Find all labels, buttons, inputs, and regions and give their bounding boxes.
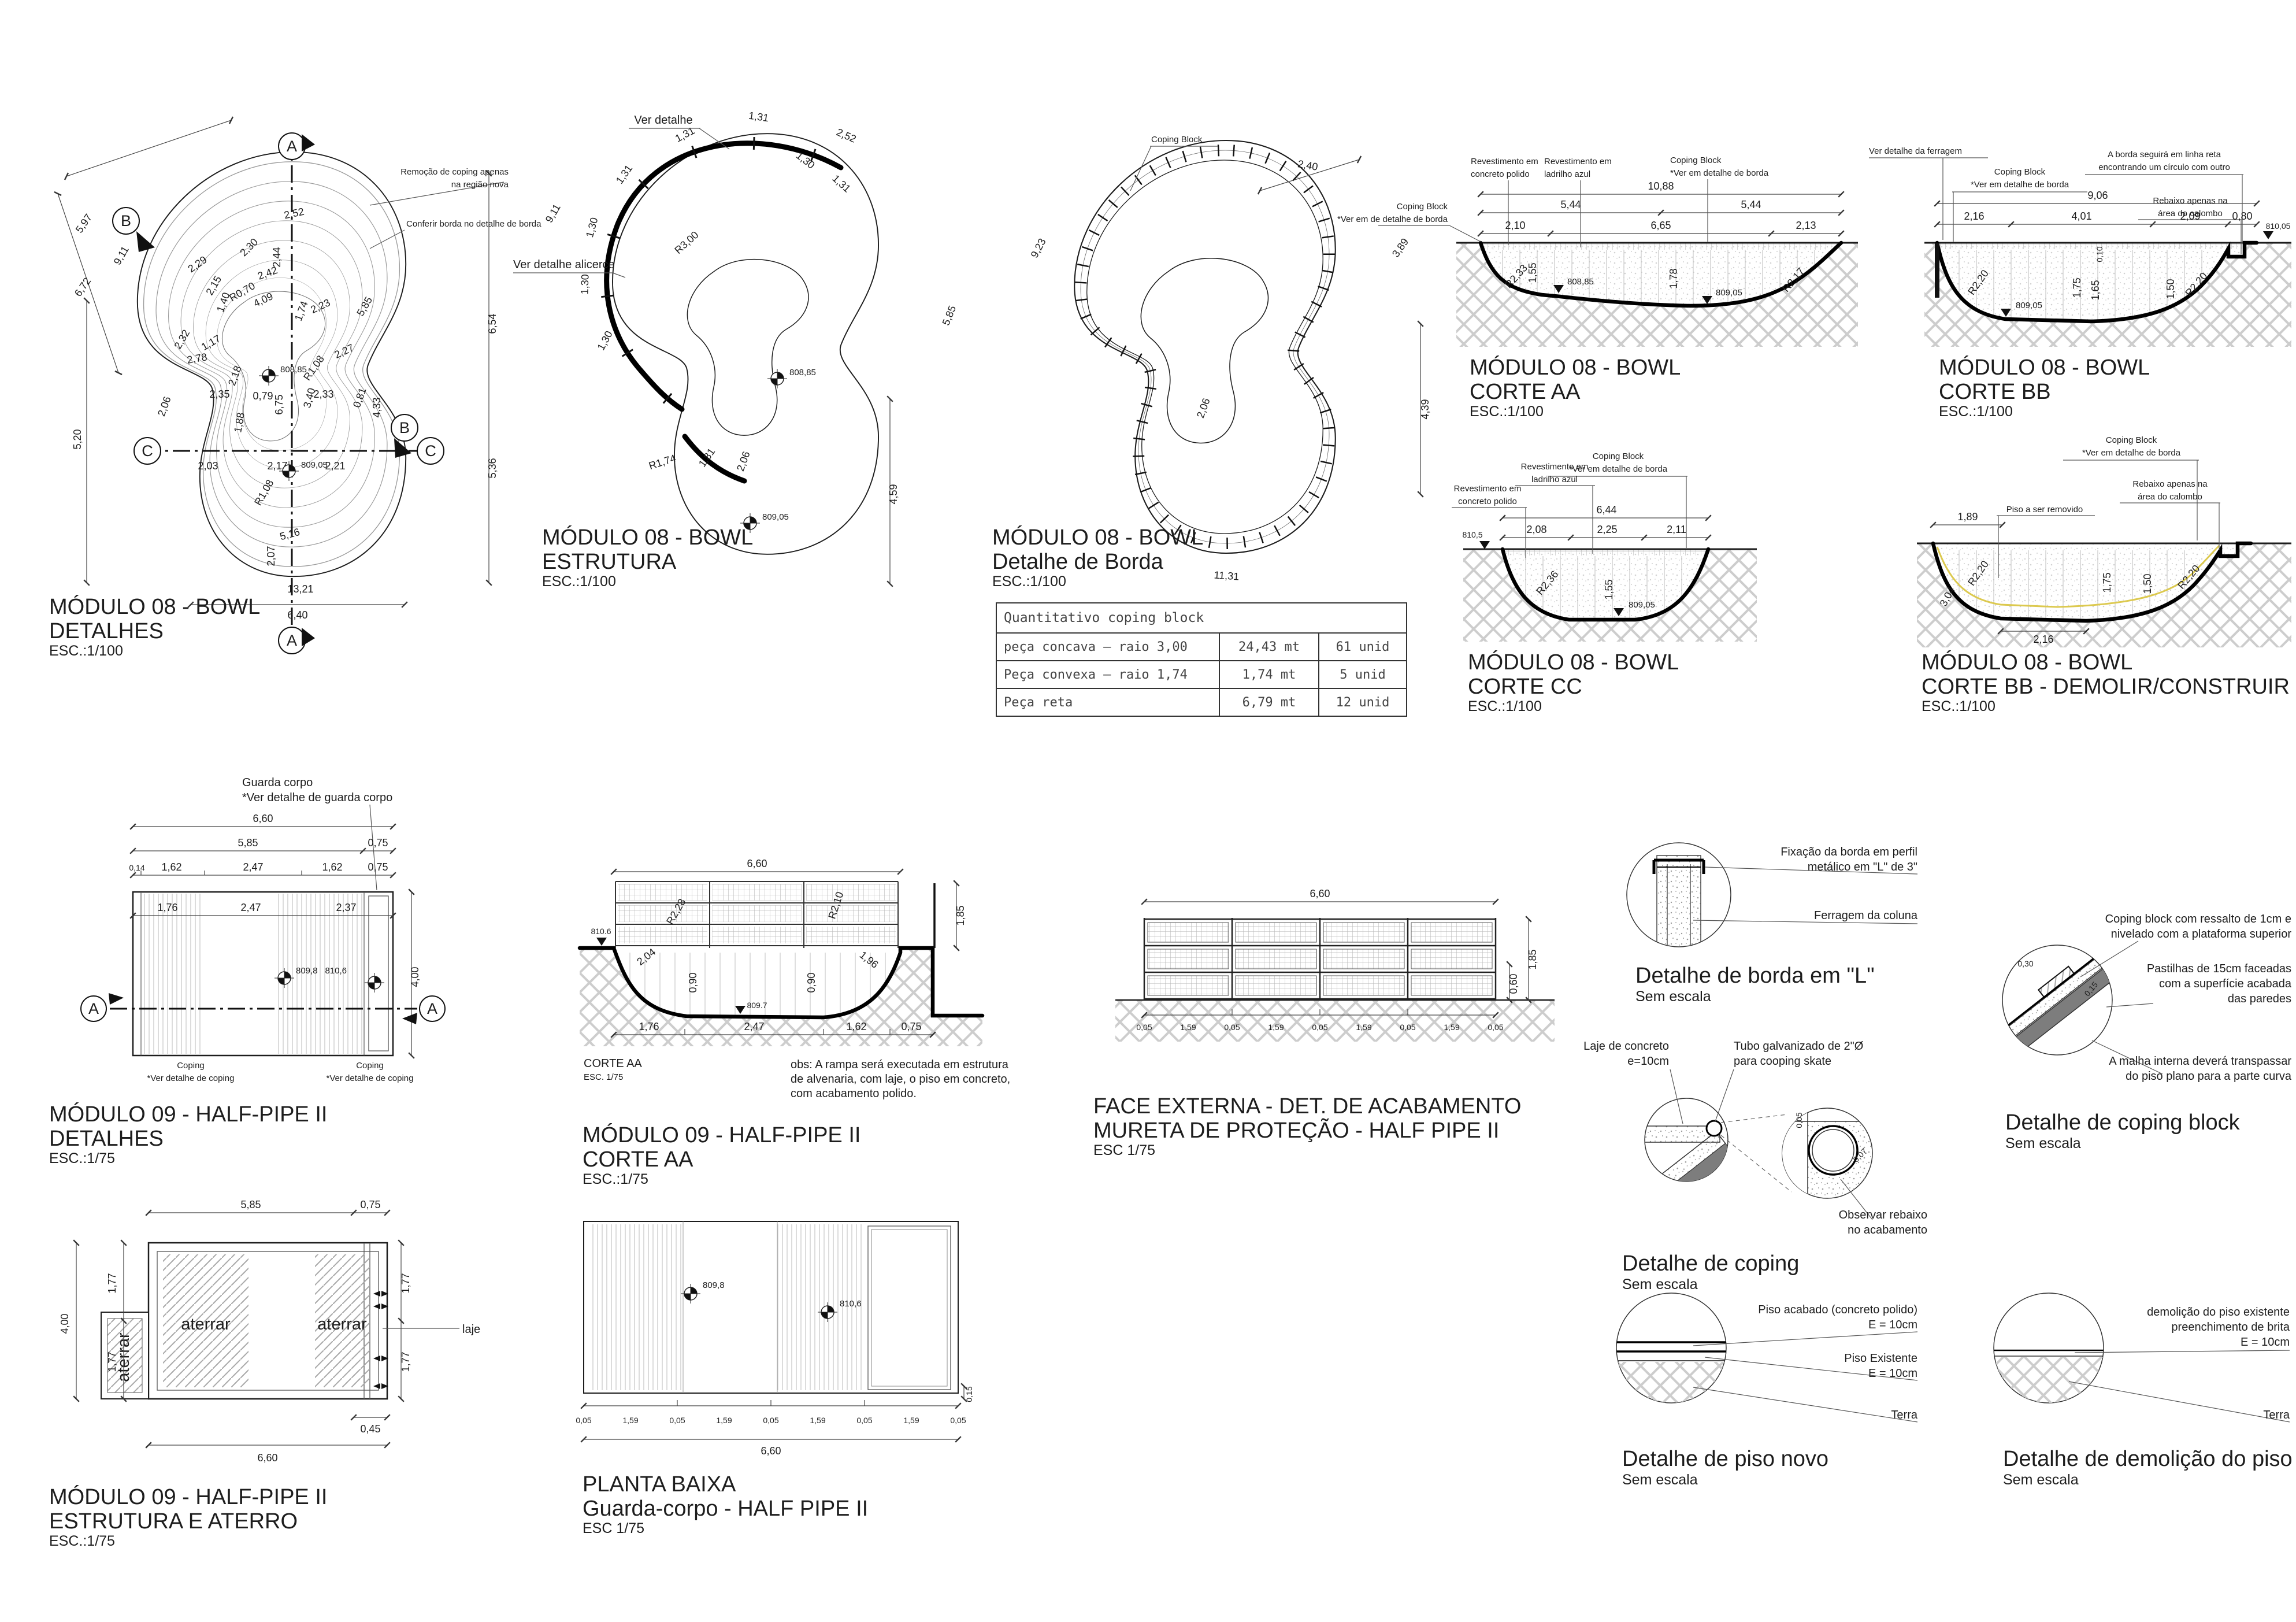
label: Piso a ser removido (2006, 505, 2083, 514)
label: A borda seguirá em linha reta (2108, 150, 2221, 160)
table-title: Quantitativo coping block (997, 610, 1406, 625)
dim: 6,75 (273, 394, 285, 414)
label: das paredes (2228, 993, 2291, 1005)
callout: Ver detalhe (634, 114, 692, 127)
table-cell-length: 6,79 mt (1219, 689, 1318, 716)
callouts: Ver detalhe Ver detalhe alicerce (513, 114, 729, 277)
guardrail-plan (369, 896, 388, 1051)
panel-subtitle: DETALHES (49, 619, 164, 643)
dim: 5,85 (238, 837, 258, 849)
dim: 1,59 (810, 1416, 825, 1425)
dim: 11,31 (1214, 569, 1240, 583)
level-symbol (259, 366, 279, 386)
note: Conferir borda no detalhe de borda (406, 219, 541, 229)
dim: 5,85 (940, 304, 959, 327)
panel-title: MÓDULO 08 - BOWL (1922, 650, 2132, 675)
label: Piso acabado (concreto polido) (1758, 1303, 1917, 1316)
dim: 2,29 (186, 254, 209, 275)
label: do piso plano para a parte curva (2126, 1070, 2292, 1083)
dim: 0,05 (950, 1416, 966, 1425)
dim: 4,09 (251, 290, 275, 309)
floor-layers (1616, 1342, 1726, 1405)
panel-subtitle: CORTE CC (1468, 675, 1582, 699)
dim: 5,97 (73, 212, 94, 235)
panel-planta-baixa: 809,8 810,6 0,05 1,59 0,05 1,59 0,05 1,5… (576, 1221, 974, 1536)
section-sublabel: CORTE AA (584, 1057, 642, 1070)
table-row: Peça convexa – raio 1,74 1,74 mt 5 unid (997, 660, 1406, 688)
dim: 2,32 (172, 328, 192, 351)
panel-scale: ESC.:1/100 (1470, 403, 1544, 420)
dimension-text: 1,31 1,31 1,31 1,30 1,30 1,30 2,52 1,30 … (543, 110, 959, 505)
label: Coping (177, 1061, 205, 1071)
label: e=10cm (1627, 1055, 1669, 1068)
dim: 2,44 (271, 247, 283, 267)
dim: 1,75 (2101, 572, 2113, 592)
label: Coping Block (1994, 167, 2046, 177)
dim: 1,31 (748, 110, 769, 124)
section-marker-a: A (88, 1000, 99, 1017)
dim: 2,16 (1964, 210, 1984, 222)
column-detail (1654, 856, 1704, 954)
label: *Ver em detalhe de borda (1971, 180, 2069, 190)
level-text: 810,05 (2266, 221, 2291, 231)
dim: 1,55 (1603, 579, 1615, 599)
dim: 1,74 (292, 299, 310, 323)
section-marker-b: B (121, 212, 131, 229)
dim: 13,21 (287, 583, 313, 595)
dim: 5,85 (354, 295, 374, 318)
panel-subtitle: CORTE BB (1939, 380, 2051, 404)
dim: 10,88 (1648, 180, 1674, 192)
dimension-lines (1869, 158, 2257, 254)
label: área do calombo (2138, 492, 2202, 502)
dim: 5,16 (279, 526, 301, 542)
dim: 1,77 (106, 1273, 118, 1293)
label: preenchimento de brita (2171, 1321, 2290, 1334)
dim: 1,59 (622, 1416, 638, 1425)
dim: 6,60 (253, 813, 273, 824)
dim: 6,44 (1596, 504, 1616, 516)
panel-face-externa: 6,60 1,85 0,60 0,05 1,59 0,05 1,59 0,05 … (1093, 888, 1555, 1158)
level-text: 810.6 (591, 927, 611, 936)
dim: 2,47 (240, 902, 261, 913)
panel-scale: ESC.:1/100 (1922, 698, 1995, 714)
table-cell-desc: Peça convexa – raio 1,74 (997, 668, 1219, 682)
dimension-lines (584, 1386, 964, 1439)
obs-note: de alvenaria, com laje, o piso em concre… (791, 1073, 1010, 1086)
dim: 2,52 (834, 126, 858, 145)
dim: 2,25 (1597, 524, 1617, 535)
dim: 2,07 (265, 546, 277, 566)
level-text: 810,5 (1462, 530, 1482, 539)
callout: Ver detalhe alicerce (513, 258, 615, 271)
label: Pastilhas de 15cm faceadas (2147, 962, 2291, 975)
dim: 2,06 (1195, 397, 1212, 420)
callout: Coping Block (1151, 135, 1203, 145)
panel-subtitle: CORTE BB - DEMOLIR/CONSTRUIR (1922, 675, 2290, 699)
dim: 1,65 (2090, 280, 2101, 300)
panel-scale: ESC.:1/100 (1468, 698, 1542, 714)
label: Observar rebaixo (1839, 1209, 1927, 1221)
dim: 2,13 (1796, 220, 1816, 231)
dim: 0,90 (806, 972, 817, 993)
panel-title: MÓDULO 08 - BOWL (49, 594, 260, 619)
dim: 1,59 (1444, 1023, 1459, 1032)
dim: R1,74 (647, 452, 677, 472)
table-cell-qty: 61 unid (1318, 634, 1406, 660)
level-text: 809,05 (1629, 600, 1655, 610)
quantity-table: Quantitativo coping block peça concava –… (996, 602, 1407, 717)
dim: 1,59 (1356, 1023, 1371, 1032)
panel-title: MÓDULO 08 - BOWL (1939, 355, 2150, 380)
dim: 1,77 (400, 1351, 411, 1372)
panel-scale: ESC.:1/100 (542, 573, 616, 590)
panel-title: MÓDULO 09 - HALF-PIPE II (49, 1102, 327, 1127)
label: Tubo galvanizado de 2"Ø (1734, 1040, 1863, 1053)
level-text: 808,85 (280, 365, 307, 375)
dim: 1,76 (157, 902, 177, 913)
table-cell-length: 1,74 mt (1219, 661, 1318, 688)
dim: 2,37 (336, 902, 356, 913)
elevation-marker (1479, 541, 1490, 549)
panel-m08-corte-aa: Coping Block *Ver em de detalhe de borda… (1337, 155, 1858, 420)
dim: 9,23 (1029, 236, 1048, 260)
detail-scale: Sem escala (2005, 1135, 2081, 1151)
dim: 0,05 (1488, 1023, 1503, 1032)
dim: 1,78 (1668, 268, 1679, 288)
dim: 1,76 (639, 1021, 659, 1032)
aterrar-label: aterrar (181, 1315, 231, 1334)
dim: 1,59 (1268, 1023, 1284, 1032)
section-marker-b: B (399, 419, 410, 436)
dim: 3,89 (1390, 236, 1411, 259)
dim: 2,30 (238, 236, 260, 258)
dim: 1,77 (106, 1351, 118, 1372)
dim: 9,06 (2087, 190, 2108, 201)
detail-title: Detalhe de borda em "L" (1635, 964, 1875, 988)
panel-subtitle: CORTE AA (1470, 380, 1581, 404)
label: concreto polido (1471, 169, 1530, 179)
detail-scale: Sem escala (2003, 1472, 2079, 1488)
panel-detalhe-coping: 0,05 0,07 Laje de concreto e=10cm Tubo g… (1583, 1040, 1927, 1293)
dim: 1,30 (584, 216, 600, 239)
dim: 1,59 (1180, 1023, 1196, 1032)
label: encontrando um círculo com outro (2098, 162, 2230, 172)
bowl-contours (138, 152, 406, 576)
panel-m08-corte-bb: Ver detalhe da ferragem Coping Block *Ve… (1869, 146, 2291, 420)
panel-scale: ESC.:1/75 (583, 1171, 648, 1187)
label: Laje de concreto (1583, 1040, 1669, 1053)
obs-note: obs: A rampa será executada em estrutura (791, 1058, 1009, 1071)
label: Coping Block (1670, 155, 1722, 165)
dim: 2,35 (209, 388, 229, 400)
dim: 0,30 (2017, 959, 2033, 968)
level-text: 809,8 (703, 1280, 725, 1290)
panel-detalhe-demolicao: demolição do piso existente preenchiment… (1994, 1293, 2293, 1488)
dim: 5,85 (240, 1199, 261, 1210)
dim: 2,23 (309, 297, 332, 316)
dim: 0,05 (576, 1416, 591, 1425)
panel-detalhe-coping-block: 0,30 0,15 Coping block com ressalto de 1… (1991, 913, 2292, 1151)
dim: 2,03 (198, 460, 218, 472)
dim: 0,75 (368, 837, 388, 849)
label: Coping Block (2106, 435, 2157, 445)
panel-subtitle: Guarda-corpo - HALF PIPE II (583, 1497, 868, 1521)
dim: 4,59 (888, 484, 899, 504)
dim: 0,05 (1400, 1023, 1415, 1032)
callouts: Piso acabado (concreto polido) E = 10cm … (1693, 1303, 1918, 1422)
dim: 1,31 (830, 172, 852, 194)
dim: 0,10 (2095, 246, 2104, 262)
dim: 1,75 (2071, 277, 2083, 298)
level-text: 809,8 (296, 966, 318, 976)
panel-subtitle: ESTRUTURA E ATERRO (49, 1509, 298, 1534)
panel-title: PLANTA BAIXA (583, 1472, 736, 1497)
dimension-text: 5,97 9,11 6,72 2,52 2,30 2,44 2,29 2,15 … (72, 206, 498, 621)
panel-scale: ESC 1/75 (583, 1520, 644, 1536)
label: E = 10cm (1868, 1319, 1917, 1331)
panel-m09-detalhes: Guarda corpo *Ver detalhe de guarda corp… (49, 776, 445, 1166)
dim: 1,89 (1957, 511, 1978, 523)
level-text: 809,05 (2016, 301, 2042, 310)
dim: 2,21 (325, 460, 345, 472)
label: Terra (2263, 1409, 2290, 1421)
dim: 2,11 (1667, 524, 1686, 535)
label: *Ver detalhe de coping (327, 1073, 414, 1083)
dim: 0,45 (360, 1423, 380, 1435)
dim: 0,75 (360, 1199, 380, 1210)
label: *Ver em de detalhe de borda (1337, 214, 1448, 224)
dim: 0,90 (687, 972, 699, 993)
dim: 2,08 (1526, 524, 1546, 535)
level-symbol (767, 369, 787, 388)
level-text: 808,85 (789, 368, 816, 377)
dim: 2,33 (313, 388, 333, 400)
label: Guarda corpo (242, 776, 313, 789)
dim: 1,50 (2165, 279, 2176, 299)
dim: 0,05 (856, 1416, 872, 1425)
dim: 1,31 (673, 125, 696, 145)
ground-hatch (1115, 1000, 1555, 1042)
label: Revestimento em (1471, 157, 1538, 166)
table-cell-qty: 12 unid (1318, 689, 1406, 716)
label: metálico em "L" de 3" (1808, 861, 1917, 873)
dim: 1,77 (400, 1273, 411, 1293)
label: E = 10cm (2241, 1336, 2290, 1349)
dim: 1,85 (1527, 949, 1538, 969)
level-text: 809,05 (301, 460, 328, 470)
panel-m08-estrutura: 808,85 809,05 1,31 1,31 1,31 1,30 1,30 1… (513, 110, 958, 590)
dim: 4,00 (409, 966, 421, 987)
label: concreto polido (1458, 497, 1517, 506)
note: na região nova (451, 180, 509, 190)
label: Coping block com ressalto de 1cm e (2105, 913, 2291, 925)
dim: 2,10 (1505, 220, 1525, 231)
label: *Ver detalhe de coping (147, 1073, 235, 1083)
callouts: demolição do piso existente preenchiment… (2069, 1306, 2290, 1422)
label: laje (462, 1323, 480, 1336)
panel-subtitle: ESTRUTURA (542, 550, 677, 574)
label: nivelado com a plataforma superior (2111, 928, 2292, 940)
dim: 5,44 (1560, 199, 1581, 210)
label: Ferragem da coluna (1814, 909, 1918, 922)
panel-detalhe-piso-novo: Piso acabado (concreto polido) E = 10cm … (1616, 1293, 1918, 1488)
elevation-marker (596, 938, 607, 946)
level-text: 810,6 (325, 966, 347, 976)
dim: 0,05 (763, 1416, 778, 1425)
detail-title: Detalhe de coping (1622, 1251, 1799, 1276)
fence-grid (1144, 918, 1496, 1000)
section-marker-a: A (427, 1000, 437, 1017)
table-cell-desc: Peça reta (997, 695, 1219, 710)
panel-m08-corte-bb-demolir: Coping Block *Ver em detalhe de borda Re… (1917, 435, 2291, 714)
dim: 1,30 (578, 274, 591, 295)
label: Revestimento em (1544, 157, 1612, 166)
dim: 2,47 (243, 861, 263, 873)
dim: R1,08 (252, 477, 276, 508)
plan-notes: Remoção de coping apenas na região nova … (400, 167, 541, 229)
label: Piso Existente (1844, 1352, 1917, 1365)
dim: 6,72 (72, 275, 93, 298)
label: *Ver detalhe de guarda corpo (242, 791, 392, 804)
dim: 1,59 (716, 1416, 732, 1425)
label: Coping Block (1593, 451, 1644, 461)
panel-m09-corte-aa: 6,60 R2,28 R2,10 2,04 0,90 0,90 1,96 1,8… (580, 858, 1010, 1187)
label: ladrilho azul (1531, 475, 1578, 484)
dim: 5,44 (1741, 199, 1761, 210)
dim: 2,16 (2033, 634, 2053, 645)
dimension-lines (1378, 179, 1841, 247)
panel-scale: ESC.:1/75 (49, 1533, 115, 1549)
dim: 0,75 (901, 1021, 921, 1032)
aterrar-label: aterrar (317, 1315, 367, 1334)
dim: 5,36 (487, 458, 498, 478)
detail-scale: Sem escala (1635, 988, 1711, 1005)
detail-title: Detalhe de demolição do piso (2003, 1447, 2293, 1471)
table-row: peça concava – raio 3,00 24,43 mt 61 uni… (997, 632, 1406, 660)
level-text: 809.7 (747, 1001, 767, 1010)
dim: 1,30 (595, 329, 615, 352)
level-text: 810,6 (840, 1299, 862, 1309)
dim: 2,18 (226, 364, 244, 387)
labels: Coping Block *Ver em detalhe de borda Re… (1454, 451, 1668, 506)
panel-title: MÓDULO 08 - BOWL (1468, 650, 1679, 675)
labels: Coping Block *Ver em de detalhe de borda… (1337, 155, 1769, 224)
dim: 2,47 (744, 1021, 764, 1032)
dim: 4,00 (59, 1313, 71, 1334)
dim: 1,50 (2142, 573, 2153, 594)
dim: 1,88 (232, 412, 247, 434)
ramp-stripes (277, 894, 363, 1054)
panel-title: MÓDULO 09 - HALF-PIPE II (49, 1484, 327, 1509)
dim: 0,15 (965, 1386, 974, 1402)
dim: 1,31 (614, 162, 635, 186)
dim: 0,81 (351, 386, 369, 409)
dim: 1,55 (1527, 262, 1538, 283)
detail-scale: Sem escala (1622, 1276, 1698, 1293)
dim: 6,60 (761, 1445, 781, 1457)
dim: 4,01 (2071, 210, 2091, 222)
detail-scale: Sem escala (1622, 1472, 1698, 1488)
dim: 2,27 (332, 342, 355, 361)
dimension-text: 0,05 1,59 0,05 1,59 0,05 1,59 0,05 1,59 … (576, 1386, 974, 1457)
cad-canvas: A A C C B B 5,97 9,11 6,72 2,52 2,30 2,4… (0, 0, 2296, 1622)
dim: 6,60 (747, 858, 767, 869)
label: no acabamento (1848, 1224, 1927, 1236)
panel-subtitle: CORTE AA (583, 1147, 693, 1172)
label: Revestimento em (1521, 462, 1589, 472)
dim: 0,05 (1794, 1112, 1804, 1128)
panel-scale: ESC.:1/75 (49, 1150, 115, 1166)
label: demolição do piso existente (2147, 1306, 2290, 1319)
guard-fence (615, 882, 934, 948)
panel-title: MÓDULO 08 - BOWL (992, 525, 1203, 550)
panel-title: MÓDULO 08 - BOWL (1470, 355, 1681, 380)
rebar-detail (1935, 243, 1939, 298)
dim: 2,06 (735, 450, 752, 473)
label: Coping Block (1397, 202, 1448, 212)
detail-title: Detalhe de coping block (2005, 1110, 2241, 1135)
panel-detalhe-borda-l: Fixação da borda em perfil metálico em "… (1627, 843, 1918, 1005)
dim: 1,62 (322, 861, 342, 873)
dim: 0,75 (368, 861, 388, 873)
panel-title: MÓDULO 09 - HALF-PIPE II (583, 1123, 860, 1147)
panel-m08-corte-cc: Coping Block *Ver em detalhe de borda Re… (1452, 451, 1757, 714)
section-marker-a: A (287, 632, 297, 649)
section-marker-c: C (142, 442, 153, 460)
note: Remoção de coping apenas (400, 167, 509, 177)
dim: 1,62 (161, 861, 181, 873)
dim: 6,40 (287, 609, 307, 621)
label: E = 10cm (1868, 1367, 1917, 1380)
panel-scale: ESC.:1/100 (49, 643, 123, 659)
label: Rebaixo apenas na (2153, 196, 2228, 206)
label: com a superfície acabada (2159, 977, 2292, 990)
label: *Ver em detalhe de borda (1670, 168, 1769, 178)
label: para cooping skate (1734, 1055, 1831, 1068)
label: Fixação da borda em perfil (1781, 846, 1917, 858)
callouts: Coping Block (1130, 135, 1218, 191)
label: Rebaixo apenas na (2132, 479, 2208, 489)
ramp-stripes (591, 1224, 683, 1390)
dim: 9,11 (543, 202, 563, 224)
elevation-marker (2263, 231, 2273, 239)
dim: 0,14 (129, 863, 144, 872)
panel-m08-detalhes: A A C C B B 5,97 9,11 6,72 2,52 2,30 2,4… (49, 120, 541, 659)
table-cell-desc: peça concava – raio 3,00 (997, 640, 1219, 654)
label: Coping (356, 1061, 384, 1071)
coping-block-ticks (1075, 145, 1335, 549)
ramp-stripes (142, 894, 203, 1054)
label: ladrilho azul (1544, 169, 1590, 179)
dim: 0,60 (1508, 973, 1519, 994)
dim: 2,52 (283, 206, 305, 221)
dim: 0,05 (669, 1416, 685, 1425)
dim: 5,20 (72, 429, 83, 449)
dim: 1,62 (846, 1021, 866, 1032)
dim: 1,85 (955, 905, 966, 925)
dim: 0,05 (1312, 1023, 1327, 1032)
dim: 4,39 (1419, 399, 1431, 419)
panel-scale: ESC.:1/100 (1939, 403, 2013, 420)
dim: 1,59 (903, 1416, 919, 1425)
drawing-sheet: A A C C B B 5,97 9,11 6,72 2,52 2,30 2,4… (0, 0, 2296, 1622)
dim: 2,78 (186, 351, 208, 366)
panel-subtitle: Detalhe de Borda (992, 550, 1164, 574)
dim: 2,06 (155, 395, 173, 418)
label: Revestimento em (1454, 484, 1522, 494)
table-cell-length: 24,43 mt (1219, 634, 1318, 660)
